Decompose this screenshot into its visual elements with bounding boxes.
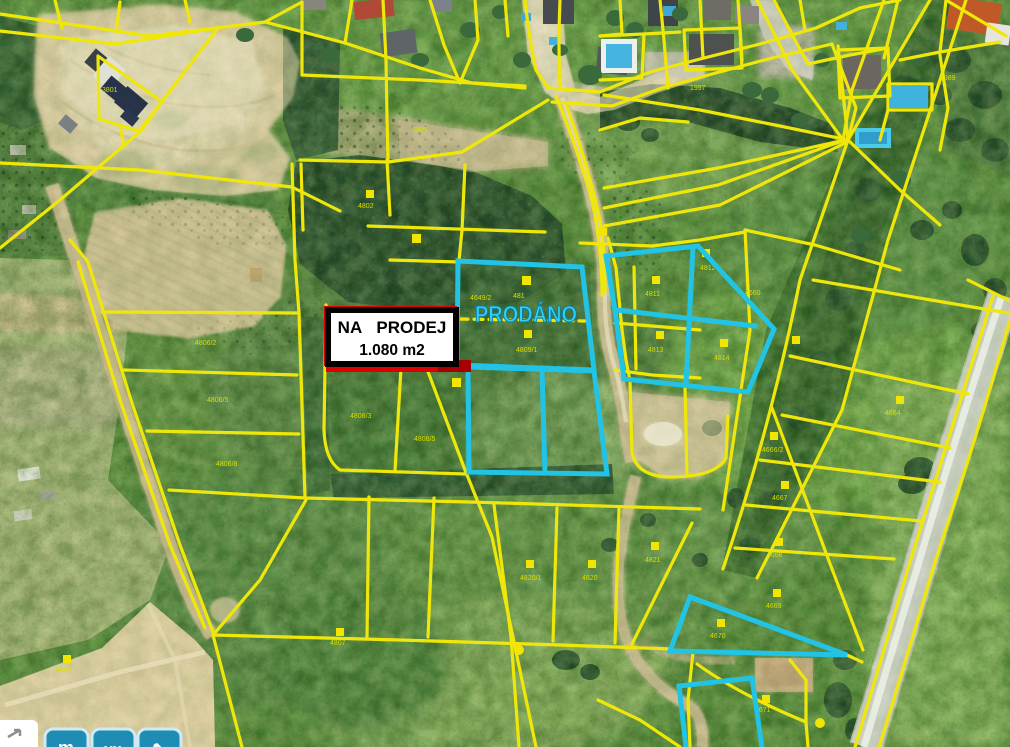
svg-text:4806/5: 4806/5	[207, 397, 229, 404]
svg-text:4809/1: 4809/1	[516, 347, 538, 354]
svg-text:4814: 4814	[714, 355, 730, 362]
svg-text:4666/2: 4666/2	[762, 447, 784, 454]
svg-text:481: 481	[513, 293, 525, 300]
svg-text:PRODÁNO: PRODÁNO	[475, 300, 577, 327]
svg-text:4821: 4821	[645, 557, 661, 564]
svg-text:4667: 4667	[772, 495, 788, 502]
svg-text:4805: 4805	[56, 667, 72, 674]
svg-text:4811: 4811	[645, 291, 660, 298]
svg-text:m: m	[58, 738, 74, 747]
svg-text:4820/1: 4820/1	[520, 575, 542, 582]
svg-text:4669: 4669	[766, 603, 782, 610]
svg-text:4806/2: 4806/2	[195, 340, 217, 347]
svg-text:1.080 m2: 1.080 m2	[359, 342, 425, 359]
svg-text:1997: 1997	[690, 85, 706, 92]
svg-text:4808/5: 4808/5	[414, 436, 436, 443]
svg-text:4670: 4670	[710, 633, 726, 640]
svg-text:4806/8: 4806/8	[216, 461, 238, 468]
svg-text:✎: ✎	[152, 742, 165, 747]
svg-text:1989: 1989	[940, 75, 956, 82]
svg-text:3805: 3805	[412, 127, 428, 134]
svg-text:4820: 4820	[582, 575, 598, 582]
svg-text:4660: 4660	[745, 290, 761, 297]
svg-text:4668: 4668	[767, 552, 783, 559]
svg-text:vu: vu	[104, 741, 122, 747]
svg-text:NA PRODEJ: NA PRODEJ	[338, 318, 447, 337]
svg-text:4807: 4807	[330, 640, 346, 647]
svg-text:4813: 4813	[648, 347, 664, 354]
svg-text:4802: 4802	[358, 203, 374, 210]
svg-text:4808/3: 4808/3	[350, 413, 372, 420]
svg-text:3801: 3801	[102, 87, 118, 94]
svg-text:4664: 4664	[885, 410, 901, 417]
